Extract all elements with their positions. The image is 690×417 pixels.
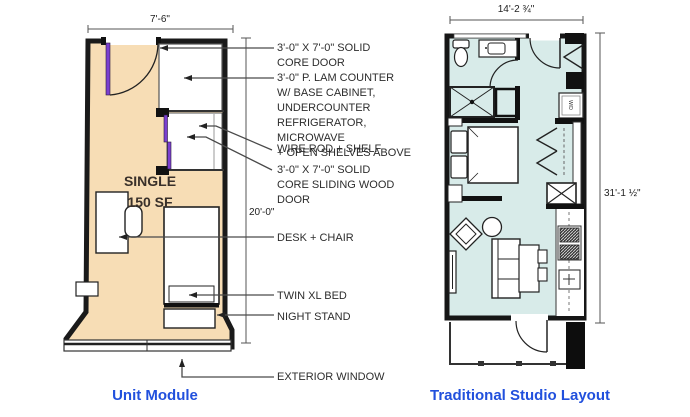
- washer-dryer: W/D: [559, 93, 583, 118]
- entry-opening: [529, 34, 560, 41]
- wall-notch: [76, 282, 98, 296]
- night-stand: [164, 309, 215, 328]
- studio-height-dimension-line: [595, 33, 605, 323]
- nightstand-top: [448, 118, 462, 126]
- unit-width-dimension-line: [88, 25, 233, 33]
- wall-band-2: [546, 204, 584, 209]
- annotation-wire-rod: WIRE ROD + SHELF: [277, 142, 437, 157]
- half-wall: [462, 196, 502, 201]
- kitchen-sink: [559, 270, 580, 289]
- nightstand-bottom: [448, 185, 462, 202]
- sliding-door-leaf-2: [168, 142, 172, 169]
- floor-plan-diagram: W/D: [0, 0, 690, 417]
- unit-width-dimension: 7'-6": [125, 14, 195, 25]
- door-jamb-left: [101, 37, 106, 45]
- annotation-night-stand: NIGHT STAND: [277, 310, 437, 325]
- balcony-door-arc: [516, 321, 547, 352]
- sofa: [492, 239, 520, 298]
- entry-door-leaf: [106, 43, 110, 95]
- shaft-box: [547, 183, 576, 204]
- studio-height-dimension: 31'-1 ½": [604, 188, 641, 199]
- annotation-sliding-door: 3'-0" X 7'-0" SOLID CORE SLIDING WOOD DO…: [277, 163, 437, 208]
- rail-post-1: [478, 361, 484, 366]
- exterior-window: [64, 340, 231, 351]
- unit-room-label: SINGLE 150 SF: [108, 171, 192, 213]
- toilet: [453, 40, 469, 67]
- pillow-2: [451, 156, 467, 178]
- studio-width-dimension-line: [450, 16, 583, 24]
- rail-post-3: [550, 361, 556, 366]
- unit-height-dimension: 20'-0": [249, 207, 274, 218]
- balcony-column: [566, 322, 585, 369]
- traditional-studio-plan: W/D: [447, 16, 605, 369]
- rail-post-2: [516, 361, 522, 366]
- annotation-door: 3'-0" X 7'-0" SOLID CORE DOOR: [277, 41, 437, 71]
- unit-module-caption: Unit Module: [80, 387, 230, 404]
- washer-dryer-label: W/D: [567, 100, 573, 110]
- entry-doorway-opening: [103, 36, 159, 45]
- studio-width-dimension: 14'-2 ¾": [466, 4, 566, 15]
- annotation-exterior-window: EXTERIOR WINDOW: [277, 370, 437, 385]
- annotation-bed: TWIN XL BED: [277, 289, 437, 304]
- annotation-desk: DESK + CHAIR: [277, 231, 437, 246]
- closet-wall-b: [566, 72, 584, 89]
- bed-foot: [169, 286, 214, 302]
- vanity-sink: [479, 40, 517, 57]
- bed-base-wall: [164, 303, 219, 308]
- unit-height-dimension-line: [241, 38, 251, 343]
- closet-wall-a: [565, 33, 584, 44]
- top-wall-window: [454, 34, 526, 38]
- sliding-door-leaf-1: [164, 115, 168, 142]
- round-table: [483, 218, 502, 237]
- balcony-door-opening: [511, 314, 548, 322]
- traditional-studio-caption: Traditional Studio Layout: [415, 387, 625, 404]
- tv-unit: [449, 251, 456, 293]
- pillow-1: [451, 131, 467, 153]
- kitchen: [556, 209, 584, 316]
- stove: [558, 226, 581, 260]
- leader-exterior-window: [182, 359, 274, 377]
